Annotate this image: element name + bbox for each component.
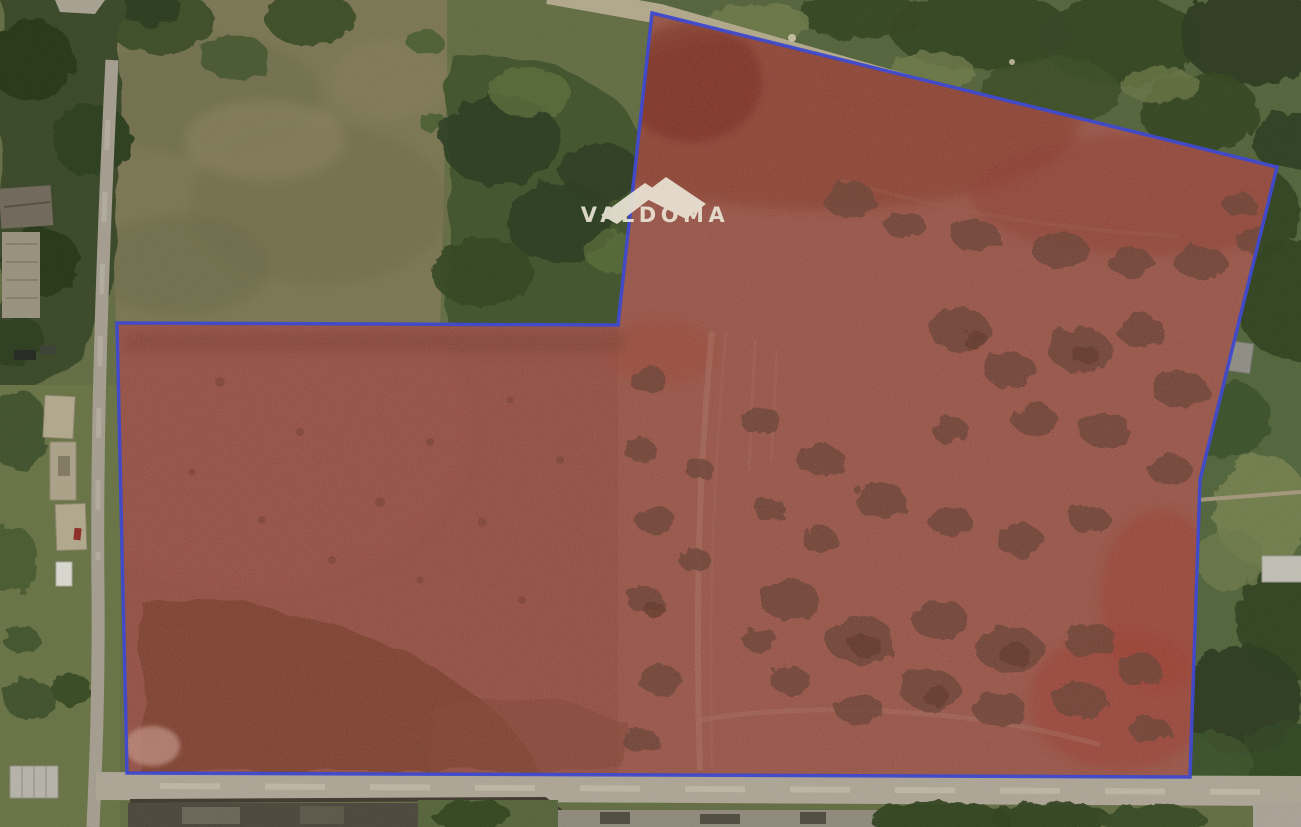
satellite-image: VALDOMA: [0, 0, 1301, 827]
photo-grain: [0, 0, 1301, 827]
